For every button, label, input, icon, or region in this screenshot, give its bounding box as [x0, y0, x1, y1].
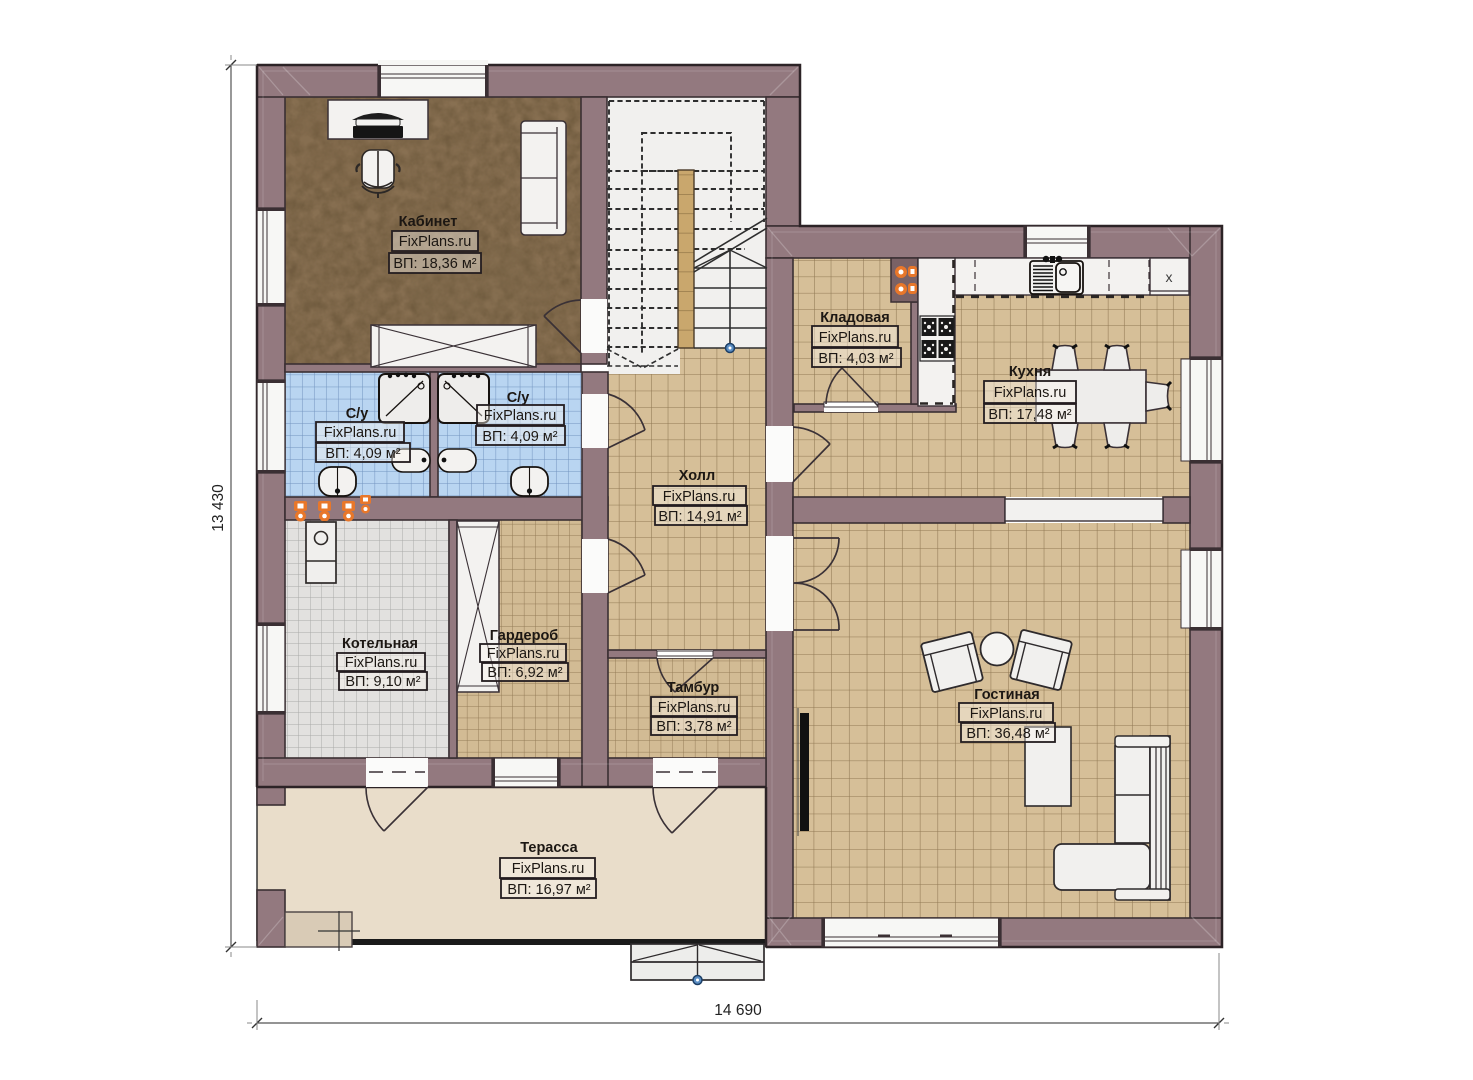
- svg-text:FixPlans.ru: FixPlans.ru: [970, 706, 1043, 722]
- svg-text:С/у: С/у: [346, 406, 369, 422]
- svg-text:14 690: 14 690: [714, 1002, 762, 1019]
- svg-text:С/у: С/у: [507, 390, 530, 406]
- svg-text:FixPlans.ru: FixPlans.ru: [663, 489, 736, 505]
- svg-text:ВП: 4,09 м²: ВП: 4,09 м²: [325, 446, 400, 462]
- svg-text:Котельная: Котельная: [342, 636, 418, 652]
- svg-text:ВП: 16,97 м²: ВП: 16,97 м²: [507, 882, 590, 898]
- svg-text:FixPlans.ru: FixPlans.ru: [324, 425, 397, 441]
- svg-text:ВП: 36,48 м²: ВП: 36,48 м²: [966, 726, 1049, 742]
- svg-text:Гардероб: Гардероб: [490, 628, 559, 644]
- svg-text:Кладовая: Кладовая: [820, 310, 889, 326]
- svg-text:Терасса: Терасса: [520, 840, 578, 856]
- svg-text:ВП: 4,03 м²: ВП: 4,03 м²: [818, 351, 893, 367]
- svg-text:FixPlans.ru: FixPlans.ru: [345, 655, 418, 671]
- svg-text:ВП: 3,78 м²: ВП: 3,78 м²: [656, 719, 731, 735]
- svg-text:FixPlans.ru: FixPlans.ru: [994, 385, 1067, 401]
- svg-text:Холл: Холл: [679, 468, 715, 484]
- svg-text:FixPlans.ru: FixPlans.ru: [658, 700, 731, 716]
- svg-text:ВП: 9,10 м²: ВП: 9,10 м²: [345, 674, 420, 690]
- svg-text:x: x: [1166, 269, 1173, 285]
- svg-text:Тамбур: Тамбур: [667, 680, 720, 696]
- svg-text:ВП: 6,92 м²: ВП: 6,92 м²: [487, 665, 562, 681]
- svg-text:Гостиная: Гостиная: [974, 687, 1040, 703]
- svg-text:FixPlans.ru: FixPlans.ru: [399, 234, 472, 250]
- svg-text:ВП: 18,36 м²: ВП: 18,36 м²: [393, 256, 476, 272]
- svg-text:FixPlans.ru: FixPlans.ru: [512, 861, 585, 877]
- svg-text:FixPlans.ru: FixPlans.ru: [484, 408, 557, 424]
- svg-text:FixPlans.ru: FixPlans.ru: [487, 646, 560, 662]
- svg-text:Кабинет: Кабинет: [399, 214, 458, 230]
- svg-text:13 430: 13 430: [210, 484, 227, 532]
- svg-text:FixPlans.ru: FixPlans.ru: [819, 330, 892, 346]
- svg-text:ВП: 4,09 м²: ВП: 4,09 м²: [482, 429, 557, 445]
- svg-text:ВП: 17,48 м²: ВП: 17,48 м²: [988, 407, 1071, 423]
- svg-text:Кухня: Кухня: [1009, 364, 1051, 380]
- svg-text:ВП: 14,91 м²: ВП: 14,91 м²: [658, 509, 741, 525]
